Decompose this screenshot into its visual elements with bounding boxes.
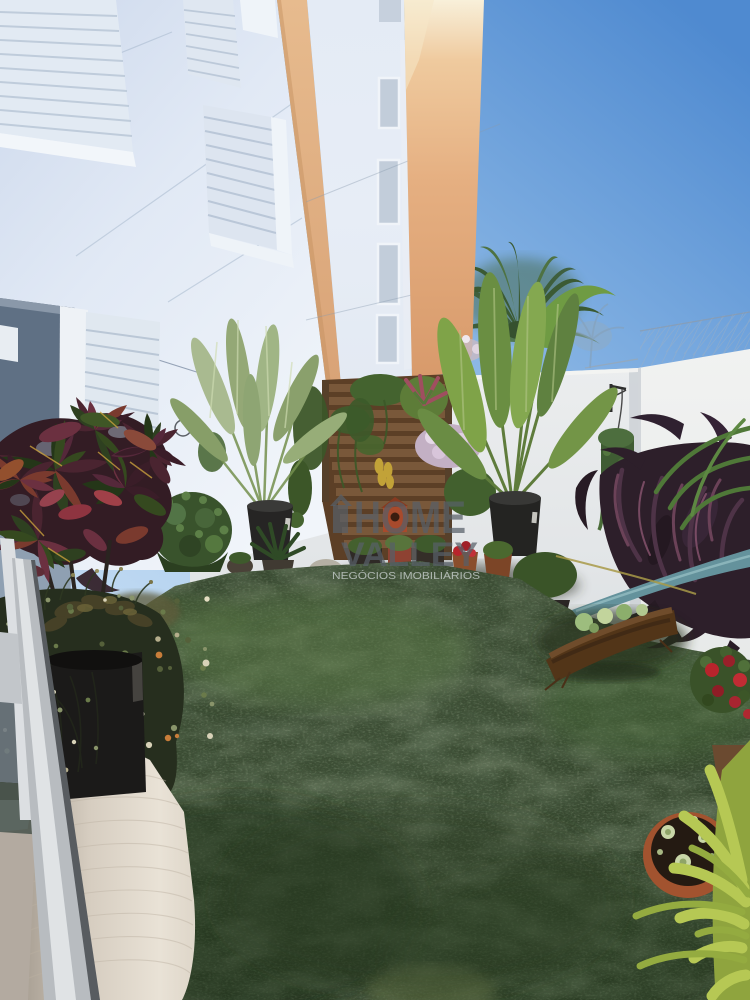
svg-text:VALLEY: VALLEY bbox=[341, 536, 478, 574]
svg-text:NEGÓCIOS IMOBILIÁRIOS: NEGÓCIOS IMOBILIÁRIOS bbox=[332, 569, 480, 582]
